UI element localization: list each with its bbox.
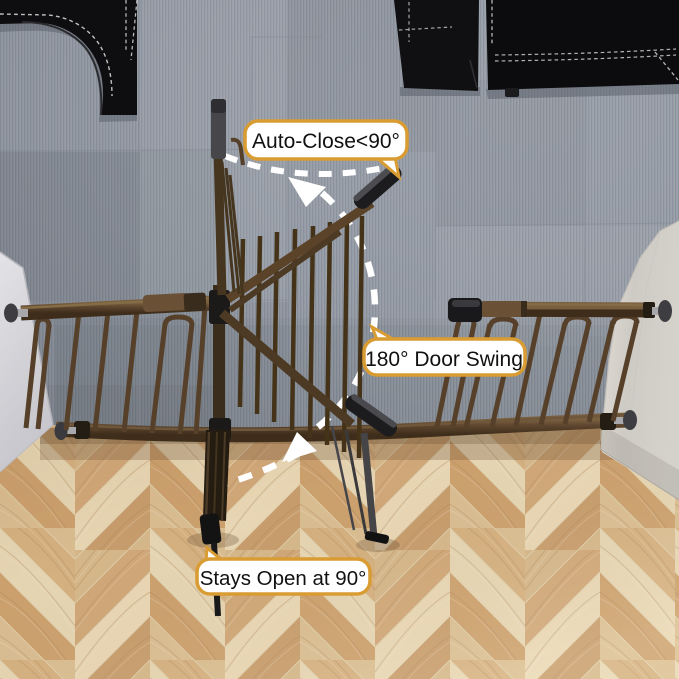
svg-text:180° Door Swing: 180° Door Swing <box>365 348 523 371</box>
svg-text:Auto-Close<90°: Auto-Close<90° <box>252 130 400 153</box>
svg-text:Stays Open at 90°: Stays Open at 90° <box>200 567 367 590</box>
